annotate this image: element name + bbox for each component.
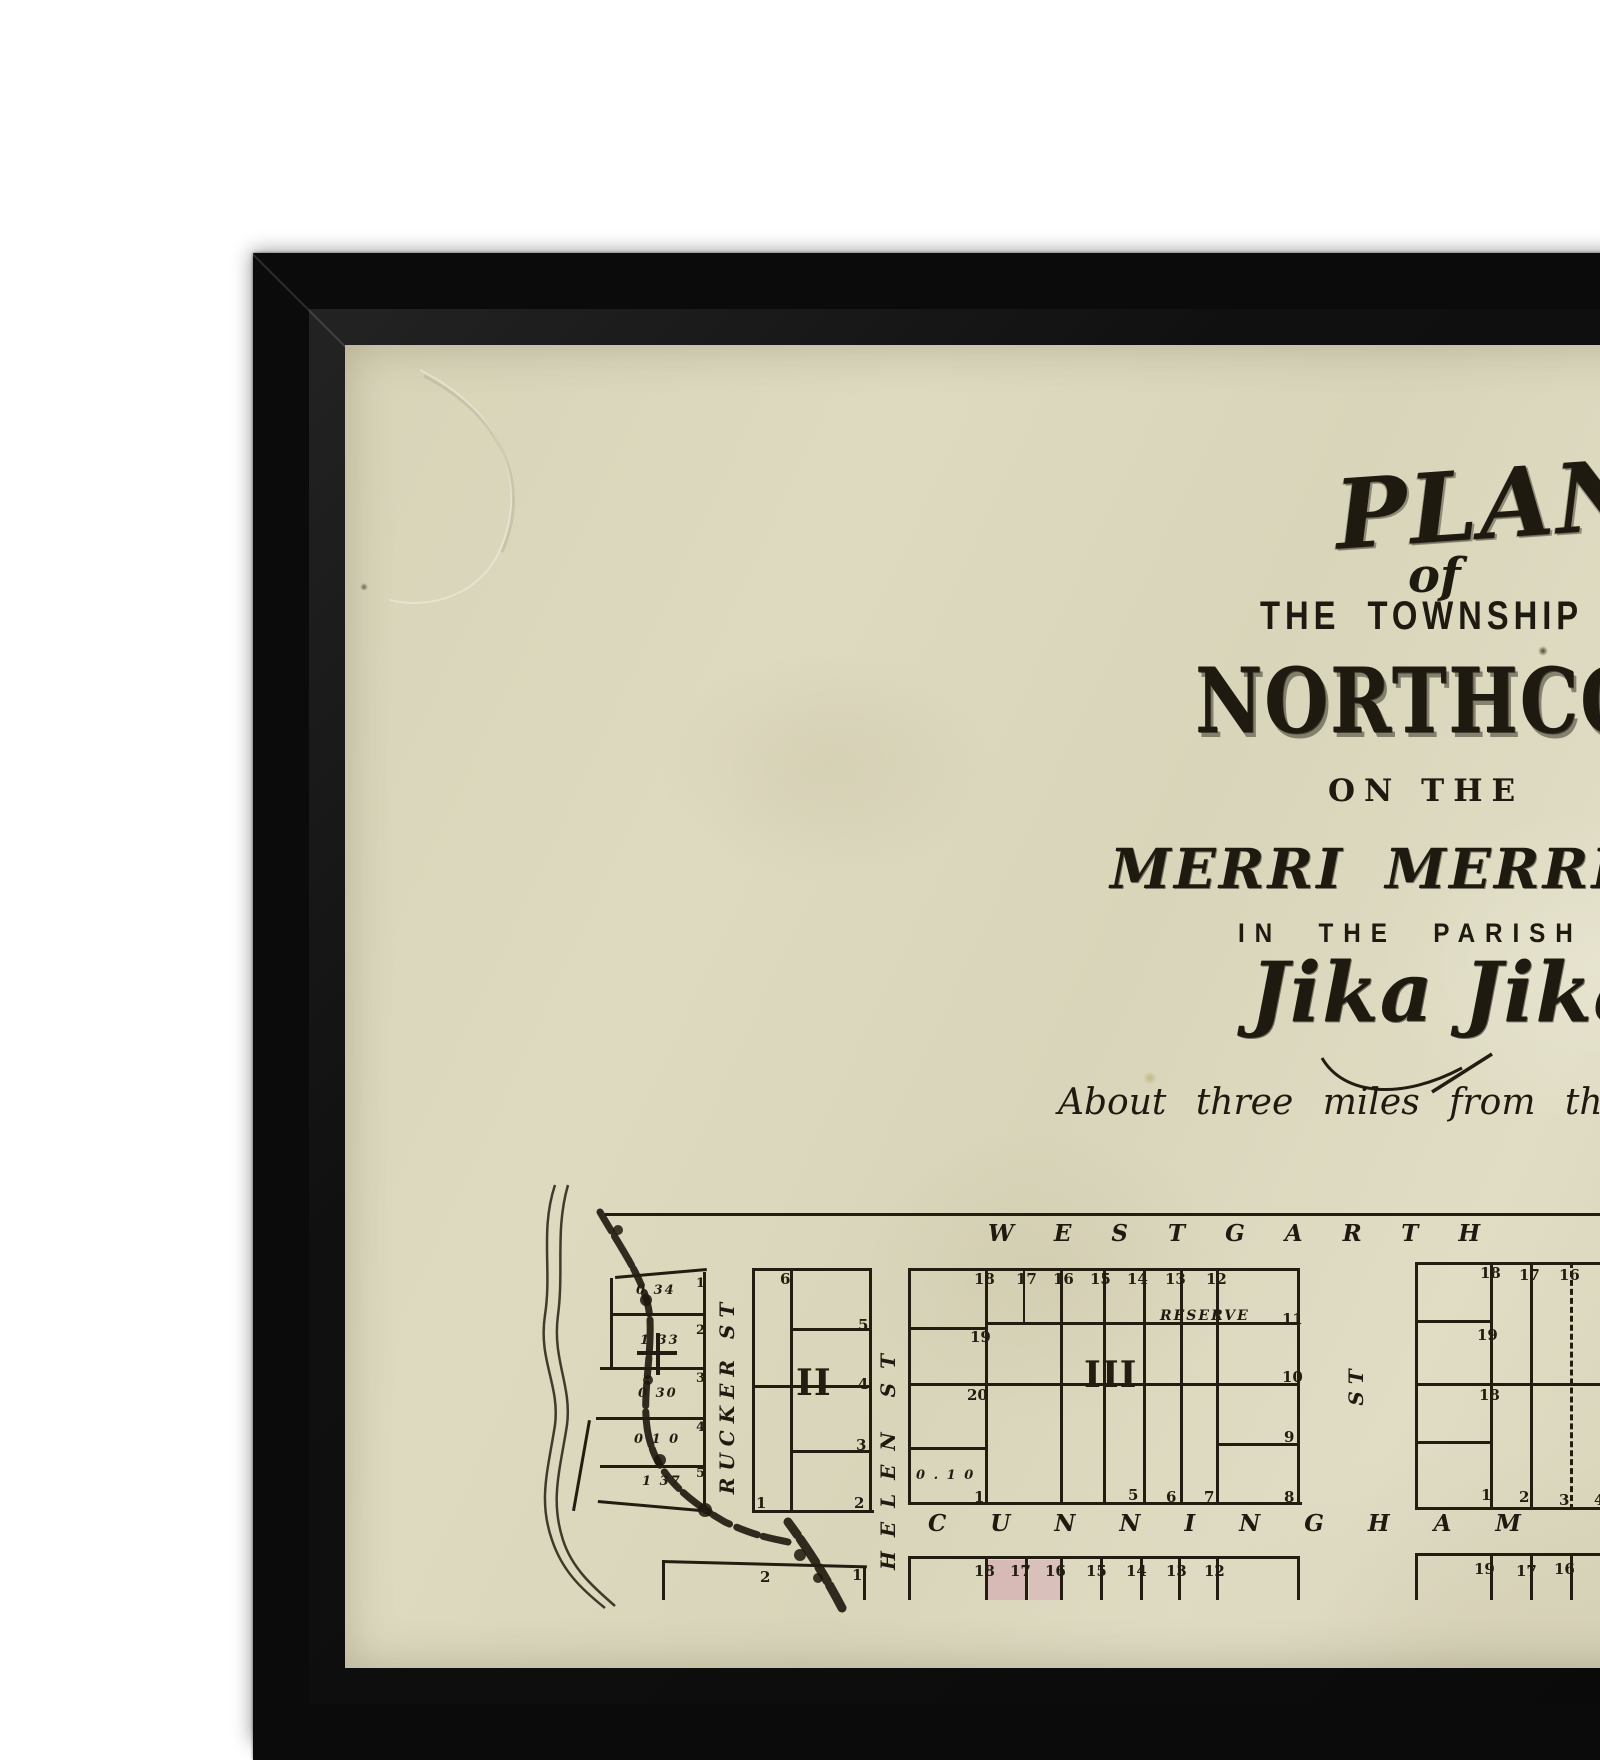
map-line — [1060, 1268, 1063, 1505]
lot-number: 5 — [858, 1316, 868, 1334]
lot-number: 1 — [756, 1494, 766, 1512]
map-line — [908, 1556, 1300, 1559]
lot-number: 18 — [974, 1270, 995, 1288]
street-label-rucker-st: RUCKER ST — [715, 1296, 739, 1495]
lot-number: 2 — [760, 1568, 770, 1586]
lot-number: 13 — [1165, 1270, 1186, 1288]
map-line — [1530, 1262, 1533, 1510]
lot-number: 5 — [696, 1466, 705, 1481]
lot-number: 4 — [858, 1375, 868, 1393]
lot-number: 16 — [1554, 1560, 1575, 1578]
map-line — [596, 1417, 706, 1420]
street-label-cunningham: CUNNINGHAM — [928, 1510, 1565, 1537]
map-line — [600, 1465, 706, 1468]
lot-number: 17 — [1516, 1562, 1537, 1580]
map-line — [908, 1447, 988, 1450]
map-line — [662, 1560, 665, 1600]
map-line — [610, 1278, 613, 1370]
lot-number: 8 — [1284, 1488, 1294, 1506]
map-line — [1216, 1268, 1219, 1505]
lot-number: 1 37 — [642, 1474, 682, 1489]
map-subtitle-distance: About three miles from the City of Melbo… — [1058, 1082, 1600, 1123]
lot-number: 5 — [1128, 1486, 1138, 1504]
lot-number: 17 — [1010, 1562, 1031, 1580]
map-line — [790, 1268, 793, 1513]
lot-number: 2 — [1519, 1488, 1529, 1506]
map-line — [869, 1268, 872, 1513]
map-title-on-the: ON THE — [1328, 773, 1524, 809]
map-line — [863, 1566, 866, 1600]
map-line — [908, 1556, 911, 1600]
lot-number: 15 — [1086, 1562, 1107, 1580]
lot-number: 3 — [856, 1436, 866, 1454]
lot-number: 16 — [1053, 1270, 1074, 1288]
lot-number: 3 — [1559, 1491, 1569, 1509]
map-line — [1415, 1441, 1493, 1444]
map-line — [985, 1322, 1300, 1325]
map-line — [908, 1268, 911, 1505]
lot-number: 1 — [1481, 1486, 1491, 1504]
lot-number: 10 — [1282, 1368, 1303, 1386]
map-line — [1415, 1383, 1600, 1386]
lot-number: 1 — [852, 1566, 862, 1584]
picture-frame: PLAN of THE TOWNSHIP OF NORTHCOTE ON THE… — [253, 253, 1600, 1760]
lot-number: 20 — [967, 1386, 988, 1404]
frame-miter-joint — [252, 253, 347, 348]
street-label-helen-st: HELEN ST — [876, 1340, 900, 1570]
lot-number: 12 — [1204, 1562, 1225, 1580]
map-line — [612, 1313, 706, 1316]
lot-number: 1 — [696, 1276, 705, 1291]
map-title-parish-name: Jika Jika. — [1250, 945, 1600, 1041]
map-title-town-name: NORTHCOTE — [1195, 648, 1600, 754]
street-label-st: ST — [1344, 1362, 1368, 1405]
lot-number: 0 30 — [638, 1386, 678, 1401]
lot-number: 18 — [974, 1562, 995, 1580]
lot-number: 17 — [1519, 1266, 1540, 1284]
lot-number: 11 — [1282, 1310, 1303, 1328]
lot-number: 17 — [1016, 1270, 1037, 1288]
map-title-township: THE TOWNSHIP OF — [1260, 594, 1600, 639]
lot-number: 18 — [1479, 1386, 1500, 1404]
map-line — [1297, 1268, 1300, 1505]
lot-number: 15 — [1090, 1270, 1111, 1288]
map-line — [1415, 1320, 1493, 1323]
map-paper: PLAN of THE TOWNSHIP OF NORTHCOTE ON THE… — [345, 345, 1600, 1668]
merri-creek-drawing — [500, 1170, 920, 1610]
lot-number: 16 — [1559, 1266, 1580, 1284]
map-line — [1297, 1556, 1300, 1600]
lot-number: 7 — [1204, 1488, 1214, 1506]
map-line — [752, 1268, 755, 1513]
lot-number: 0 1 0 — [634, 1432, 680, 1447]
map-line — [637, 1351, 677, 1355]
lot-number: 4 — [1594, 1491, 1600, 1509]
lot-number: 2 — [696, 1323, 705, 1338]
lot-number: 19 — [1477, 1326, 1498, 1344]
map-line — [600, 1367, 706, 1370]
paper-crease — [360, 350, 760, 610]
lot-number: 9 — [1284, 1428, 1294, 1446]
lot-number: 13 — [1166, 1562, 1187, 1580]
lot-number: 2 — [854, 1494, 864, 1512]
block-numeral: II — [796, 1362, 832, 1404]
map-line — [1180, 1268, 1183, 1505]
lot-number: 6 — [780, 1270, 790, 1288]
lot-number: 12 — [1206, 1270, 1227, 1288]
map-line — [1415, 1262, 1418, 1510]
map-line — [1415, 1553, 1418, 1600]
lot-number: 0 . 1 0 — [916, 1468, 975, 1483]
map-title-creek: MERRI MERRI CREEK — [1110, 836, 1600, 901]
lot-number: 19 — [970, 1328, 991, 1346]
lot-number: 19 — [1474, 1560, 1495, 1578]
lot-number: 6 — [1166, 1488, 1176, 1506]
lot-number: 1 33 — [640, 1333, 680, 1348]
street-label-westgarth: WESTGARTH — [988, 1220, 1520, 1247]
lot-number: 18 — [1480, 1264, 1501, 1282]
block-numeral: III — [1084, 1354, 1138, 1396]
lot-number: 0 34 — [636, 1283, 676, 1298]
lot-number: 14 — [1127, 1270, 1148, 1288]
lot-number: 3 — [696, 1371, 705, 1386]
lot-number: 1 — [974, 1488, 984, 1506]
map-title-plan: PLAN — [1331, 437, 1600, 571]
map-line — [752, 1268, 872, 1271]
map-line — [605, 1213, 1600, 1216]
lot-number: 4 — [696, 1420, 705, 1435]
framed-map-photo: PLAN of THE TOWNSHIP OF NORTHCOTE ON THE… — [0, 0, 1600, 1600]
lot-number: 16 — [1045, 1562, 1066, 1580]
map-line — [1570, 1262, 1573, 1510]
map-line — [1143, 1268, 1146, 1505]
lot-number: 14 — [1126, 1562, 1147, 1580]
